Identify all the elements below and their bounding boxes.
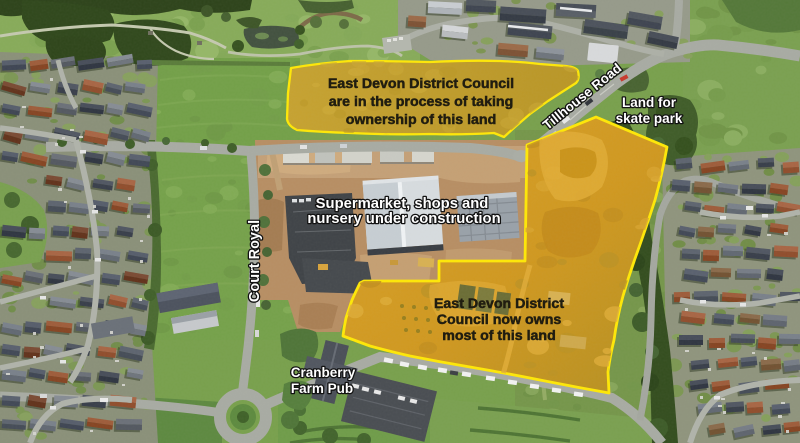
svg-text:Farm Pub: Farm Pub bbox=[291, 381, 353, 396]
svg-text:East Devon District: East Devon District bbox=[434, 296, 564, 312]
svg-text:skate park: skate park bbox=[616, 111, 683, 126]
svg-text:Land for: Land for bbox=[622, 95, 677, 110]
svg-text:East Devon District Council: East Devon District Council bbox=[328, 76, 514, 92]
svg-text:Supermarket, shops and: Supermarket, shops and bbox=[316, 196, 489, 212]
svg-text:nursery under construction: nursery under construction bbox=[307, 211, 500, 227]
svg-text:are in the process of taking: are in the process of taking bbox=[329, 94, 514, 110]
svg-text:Cranberry: Cranberry bbox=[291, 365, 356, 380]
svg-text:most of this land: most of this land bbox=[442, 328, 556, 344]
svg-text:Court Royal: Court Royal bbox=[247, 220, 263, 302]
svg-text:ownership of this land: ownership of this land bbox=[346, 112, 497, 128]
svg-text:Council now owns: Council now owns bbox=[437, 312, 562, 328]
